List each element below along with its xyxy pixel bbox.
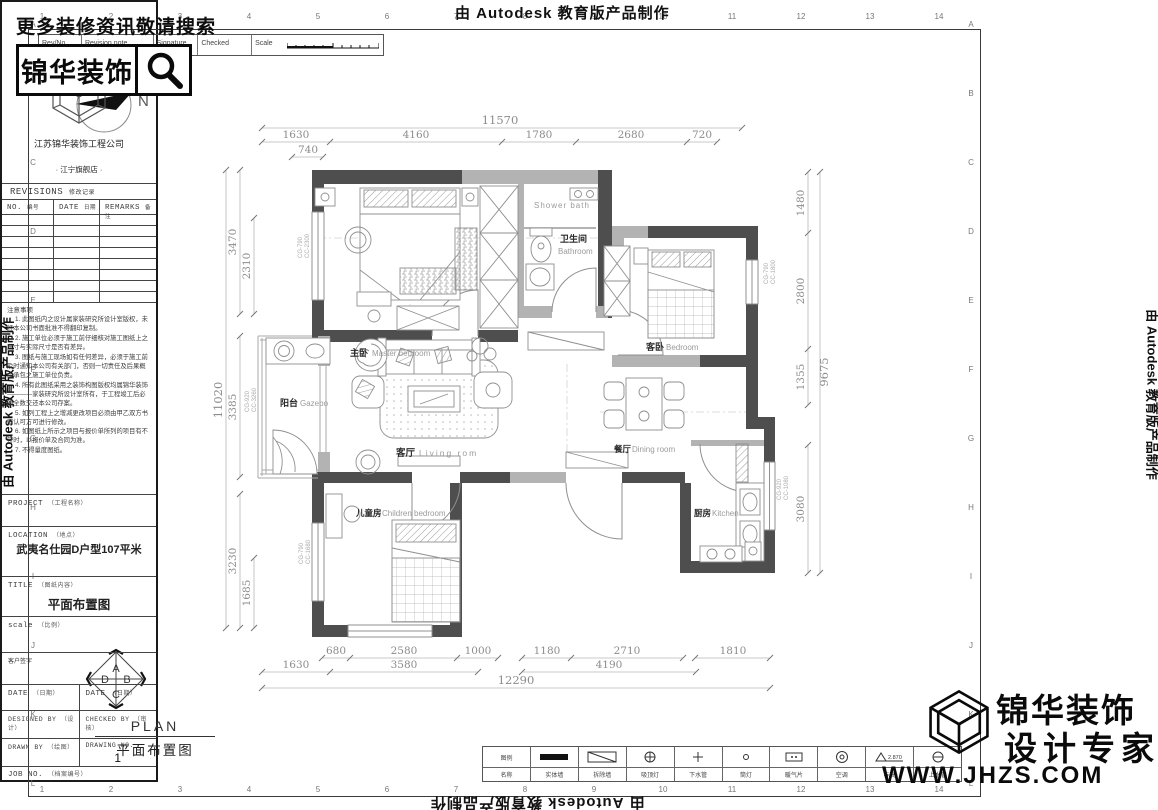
revision-row: [2, 270, 156, 281]
room-label-balcony-cn: 阳台: [280, 397, 298, 408]
svg-text:3470: 3470: [227, 229, 239, 256]
svg-text:1355: 1355: [795, 364, 807, 391]
shower-fixture: [570, 188, 598, 200]
svg-text:2800: 2800: [795, 278, 807, 305]
svg-text:CC-1680: CC-1680: [306, 539, 312, 564]
grid-col-label: 13: [862, 785, 878, 794]
master-vanity: [357, 292, 391, 322]
room-label-dining-en: Dining room: [632, 445, 675, 454]
promo-text: 更多装修资讯敬请搜索: [16, 12, 216, 39]
grid-row-label: J: [963, 641, 979, 650]
room-label-bath-en: Bathroom: [558, 247, 593, 256]
room-label-bedroom-cn: 客卧: [645, 341, 664, 352]
svg-text:1685: 1685: [241, 580, 253, 607]
children-desk: [326, 494, 360, 538]
water-pipe-symbol: [914, 747, 961, 768]
room-label-balcony-en: Gazebo: [300, 399, 329, 408]
store-name: · 江宁旗舰店 ·: [56, 164, 103, 175]
grid-col-label: 4: [241, 12, 257, 21]
kitchen-counter: [700, 483, 764, 562]
legend-cell-radiator: 暖气片: [770, 747, 818, 781]
svg-text:1780: 1780: [526, 129, 553, 141]
master-rug-bottom: [400, 268, 456, 294]
svg-text:4190: 4190: [596, 659, 623, 671]
dining-set: [604, 378, 684, 430]
svg-text:680: 680: [326, 645, 346, 657]
location-value: 武夷名仕园D户型107平米: [2, 543, 156, 557]
room-label-living-en: Living rom: [419, 448, 478, 458]
radiator-symbol: [770, 747, 817, 768]
grid-col-label: 5: [310, 785, 326, 794]
legend-cell-ac: 空调: [818, 747, 866, 781]
grid-col-label: 13: [862, 12, 878, 21]
grid-col-label: 2: [103, 785, 119, 794]
room-label-bath-cn: 卫生间: [560, 233, 587, 244]
toilet: [530, 228, 552, 262]
solid-wall-symbol: [531, 747, 578, 768]
side-table: [356, 450, 380, 474]
removed-wall-symbol: [579, 747, 626, 768]
grid-col-label: 10: [655, 785, 671, 794]
svg-text:3080: 3080: [795, 496, 807, 523]
revision-row: [2, 292, 156, 303]
svg-text:1480: 1480: [795, 190, 807, 217]
svg-text:3230: 3230: [227, 548, 239, 575]
svg-text:1000: 1000: [465, 645, 492, 657]
revision-row: [2, 248, 156, 259]
grid-col-label: 4: [241, 785, 257, 794]
brand-search-box: 锦华装饰: [16, 44, 192, 96]
plan-caption: PLAN 平面布置图: [70, 718, 240, 759]
legend-cell-ceiling-lamp: 吸顶灯: [627, 747, 675, 781]
revision-row: [2, 215, 156, 226]
svg-text:11570: 11570: [482, 113, 519, 127]
legend-cell-elevation: 2.870 标高: [866, 747, 914, 781]
drawing-title-value: 平面布置图: [2, 594, 156, 613]
room-label-bedroom-en: Bedroom: [666, 343, 699, 352]
spotlight-symbol: [723, 747, 770, 768]
legend-cell-title: 图例 名称: [483, 747, 531, 781]
grid-row-label: B: [963, 89, 979, 98]
svg-text:CG-920: CG-920: [777, 478, 783, 500]
svg-text:2710: 2710: [614, 645, 641, 657]
svg-text:2580: 2580: [391, 645, 418, 657]
grid-row-label: D: [963, 227, 979, 236]
svg-text:2310: 2310: [241, 253, 253, 280]
revision-row: [2, 226, 156, 237]
legend-cell-removed-wall: 拆除墙: [579, 747, 627, 781]
grid-col-label: 5: [310, 12, 326, 21]
svg-text:1630: 1630: [283, 129, 310, 141]
elevation-symbol: 2.870: [866, 747, 913, 768]
svg-text:CG-920: CG-920: [245, 390, 251, 412]
grid-col-label: 11: [724, 12, 740, 21]
revisions-title: REVISIONS 修改记录: [2, 184, 156, 200]
title-row: TITLE （图纸内容） 平面布置图: [2, 577, 156, 617]
grid-row-label: F: [963, 365, 979, 374]
magnifier-icon: [138, 47, 189, 93]
bathroom-door: [552, 268, 596, 312]
company-name: 江苏锦华装饰工程公司: [34, 137, 124, 150]
autodesk-watermark-top: 由 Autodesk 教育版产品制作: [455, 2, 670, 23]
floor-plan: 主卧 Master bedroom Shower bath 卫生间 Bathro…: [200, 100, 896, 705]
legend-cell-solid-wall: 实体墙: [531, 747, 579, 781]
room-label-kitchen-en: Kitchen: [712, 509, 739, 518]
scale-row: scale （比例）: [2, 617, 156, 653]
brand-overlay-line1: 锦华装饰: [996, 684, 1136, 732]
guest-bed: [634, 248, 714, 338]
room-label-living-cn: 客厅: [395, 447, 416, 459]
svg-text:2680: 2680: [618, 129, 645, 141]
svg-text:CC-1800: CC-1800: [771, 259, 777, 284]
svg-text:2.870: 2.870: [888, 755, 902, 761]
autodesk-watermark-right: 由 Autodesk 教育版产品制作: [1144, 260, 1158, 530]
svg-text:3580: 3580: [391, 659, 418, 671]
svg-text:CG-790: CG-790: [764, 262, 770, 284]
entry-door: [566, 483, 622, 539]
grid-row-label: A: [963, 20, 979, 29]
svg-text:4160: 4160: [403, 129, 430, 141]
grid-col-label: 14: [931, 12, 947, 21]
grid-col-label: 14: [931, 785, 947, 794]
revisions-header: NO. 编号 DATE 日期 REMARKS 备注: [2, 200, 156, 215]
plan-caption-en: PLAN: [95, 718, 215, 737]
legend-strip: 图例 名称 实体墙 拆除墙 吸顶灯 下水管 筒灯 暖气片 空调: [482, 746, 962, 782]
drawing-sheet: 11223344556677889910101111121213131414AA…: [0, 0, 1158, 810]
svg-text:CC-3260: CC-3260: [252, 387, 258, 412]
grid-row-label: H: [963, 503, 979, 512]
grid-row-label: L: [963, 779, 979, 788]
legend-cell-drain-pipe: 下水管: [675, 747, 723, 781]
room-label-master-cn: 主卧: [350, 347, 368, 358]
grid-row-label: G: [963, 434, 979, 443]
notes-section: 注意事项 1. 此图纸内之设计属家装研究所设计室版权，未经本公司书面批准不得翻印…: [2, 303, 156, 495]
svg-text:1180: 1180: [534, 645, 561, 657]
drain-pipe-symbol: [675, 747, 722, 768]
grid-col-label: 12: [793, 12, 809, 21]
brand-overlay-line2: 设计专家: [1004, 722, 1158, 770]
room-label-dining-cn: 餐厅: [613, 444, 632, 454]
date-row: DATE （日期） DATE （日期）: [2, 685, 156, 711]
grid-row-label: C: [963, 158, 979, 167]
room-label-shower: Shower bath: [534, 201, 590, 210]
svg-text:9675: 9675: [817, 357, 831, 386]
note-item: 6. 如图纸上所示之项目与报价单所列的项目有不符时，以报价单及合同为准。: [7, 428, 151, 446]
svg-text:CG-790: CG-790: [299, 542, 305, 564]
children-bed: [392, 520, 460, 622]
revision-row: [2, 259, 156, 270]
svg-text:720: 720: [692, 129, 712, 141]
plan-caption-cn: 平面布置图: [70, 739, 240, 759]
room-label-children-en: Children bedroom: [382, 509, 446, 518]
grid-col-label: 12: [793, 785, 809, 794]
bath-sink: [526, 264, 554, 290]
client-sign-row: 客户签字: [2, 653, 156, 685]
svg-text:CC-1080: CC-1080: [784, 475, 790, 500]
room-label-kitchen-cn: 厨房: [694, 508, 711, 518]
svg-text:12290: 12290: [498, 673, 535, 687]
note-item: 4. 所有此图纸采用之装饰构图版权均属锦华装饰————家装研究所设计室所有，于工…: [7, 382, 151, 409]
grid-col-label: 6: [379, 785, 395, 794]
grid-col-label: 11: [724, 785, 740, 794]
grid-row-label: E: [963, 296, 979, 305]
note-item: 3. 图纸与施工现场如有任何差异，必须于施工前及时通知本公司有关部门，否则一切责…: [7, 354, 151, 381]
svg-text:CG-790: CG-790: [298, 236, 304, 258]
room-label-children-cn: 儿童房: [355, 508, 382, 518]
grid-row-label: K: [963, 710, 979, 719]
svg-text:1810: 1810: [720, 645, 747, 657]
legend-cell-spotlight: 筒灯: [723, 747, 771, 781]
grid-col-label: 6: [379, 12, 395, 21]
room-label-master-en: Master bedroom: [372, 349, 431, 358]
brand-logotype: 锦华装饰: [19, 47, 138, 93]
master-rug-right: [455, 228, 477, 290]
jobno-row: JOB NO. （档案编号）: [2, 767, 156, 784]
note-item: 7. 不得量度图纸。: [7, 447, 151, 456]
notes-title: 注意事项: [7, 306, 151, 315]
svg-text:740: 740: [298, 144, 318, 156]
note-item: 2. 施工单位必须于施工前仔细核对施工图纸上之尺寸与实际尺寸是否有差异。: [7, 335, 151, 353]
autodesk-watermark-bottom: 由 Autodesk 教育版产品制作: [430, 793, 645, 810]
location-row: LOCATION （地点） 武夷名仕园D户型107平米: [2, 527, 156, 577]
note-item: 1. 此图纸内之设计属家装研究所设计室版权，未经本公司书面批准不得翻印复制。: [7, 316, 151, 334]
ac-symbol: [818, 747, 865, 768]
revision-row: [2, 281, 156, 292]
strip-scale-label: Scale: [252, 35, 285, 55]
scale-bar: [287, 41, 379, 55]
svg-text:11020: 11020: [211, 382, 225, 419]
title-block: 江苏锦华装饰工程公司 · 江宁旗舰店 · REVISIONS 修改记录 NO. …: [0, 0, 158, 782]
project-row: PROJECT （工程名称）: [2, 495, 156, 527]
svg-text:CC-2300: CC-2300: [305, 233, 311, 258]
svg-text:3385: 3385: [227, 394, 239, 421]
grid-col-label: 3: [172, 785, 188, 794]
legend-cell-water-pipe: 上水管: [914, 747, 961, 781]
ceiling-lamp-symbol: [627, 747, 674, 768]
svg-text:1630: 1630: [283, 659, 310, 671]
grid-row-label: I: [963, 572, 979, 581]
revision-row: [2, 237, 156, 248]
note-item: 5. 如列工程上之增减更改项目必须由甲乙双方书面认可方可进行修改。: [7, 410, 151, 428]
